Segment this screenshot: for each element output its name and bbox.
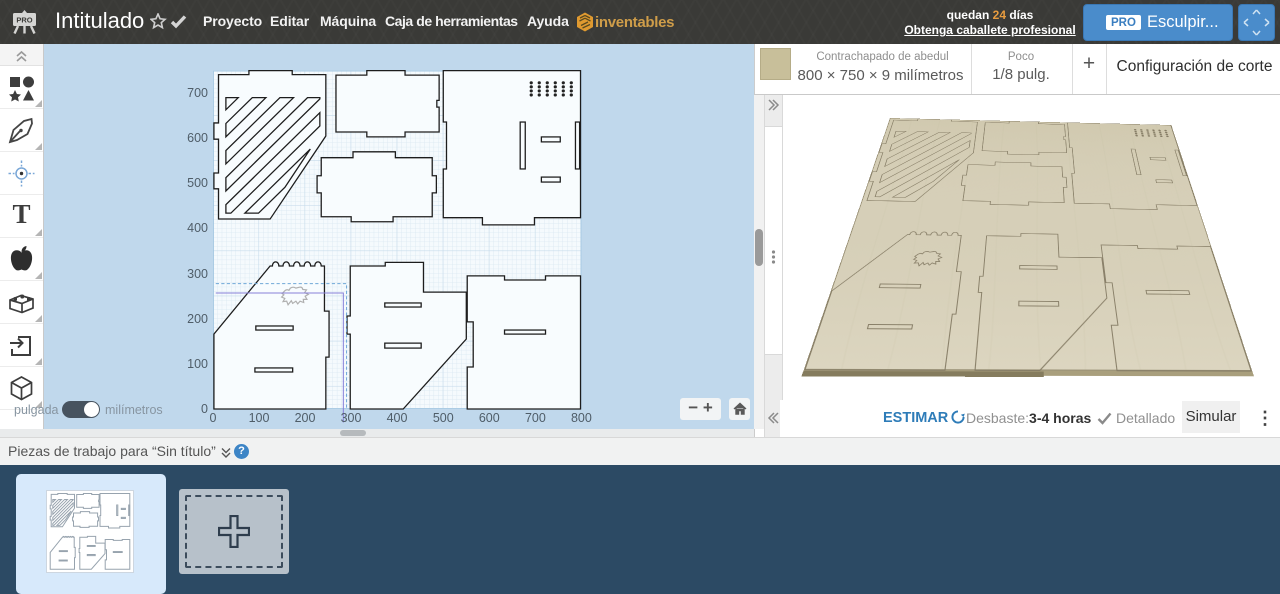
svg-text:200: 200 [295, 411, 316, 425]
svg-text:0: 0 [210, 411, 217, 425]
svg-text:PRO: PRO [16, 16, 32, 25]
svg-text:700: 700 [187, 86, 208, 100]
svg-text:500: 500 [187, 176, 208, 190]
svg-text:0: 0 [201, 402, 208, 416]
svg-text:800: 800 [571, 411, 592, 425]
svg-text:100: 100 [249, 411, 270, 425]
svg-text:500: 500 [433, 411, 454, 425]
svg-text:200: 200 [187, 312, 208, 326]
svg-text:700: 700 [525, 411, 546, 425]
svg-text:400: 400 [187, 221, 208, 235]
svg-text:600: 600 [187, 131, 208, 145]
svg-text:100: 100 [187, 357, 208, 371]
svg-text:300: 300 [187, 267, 208, 281]
svg-text:600: 600 [479, 411, 500, 425]
svg-text:300: 300 [341, 411, 362, 425]
svg-text:400: 400 [387, 411, 408, 425]
